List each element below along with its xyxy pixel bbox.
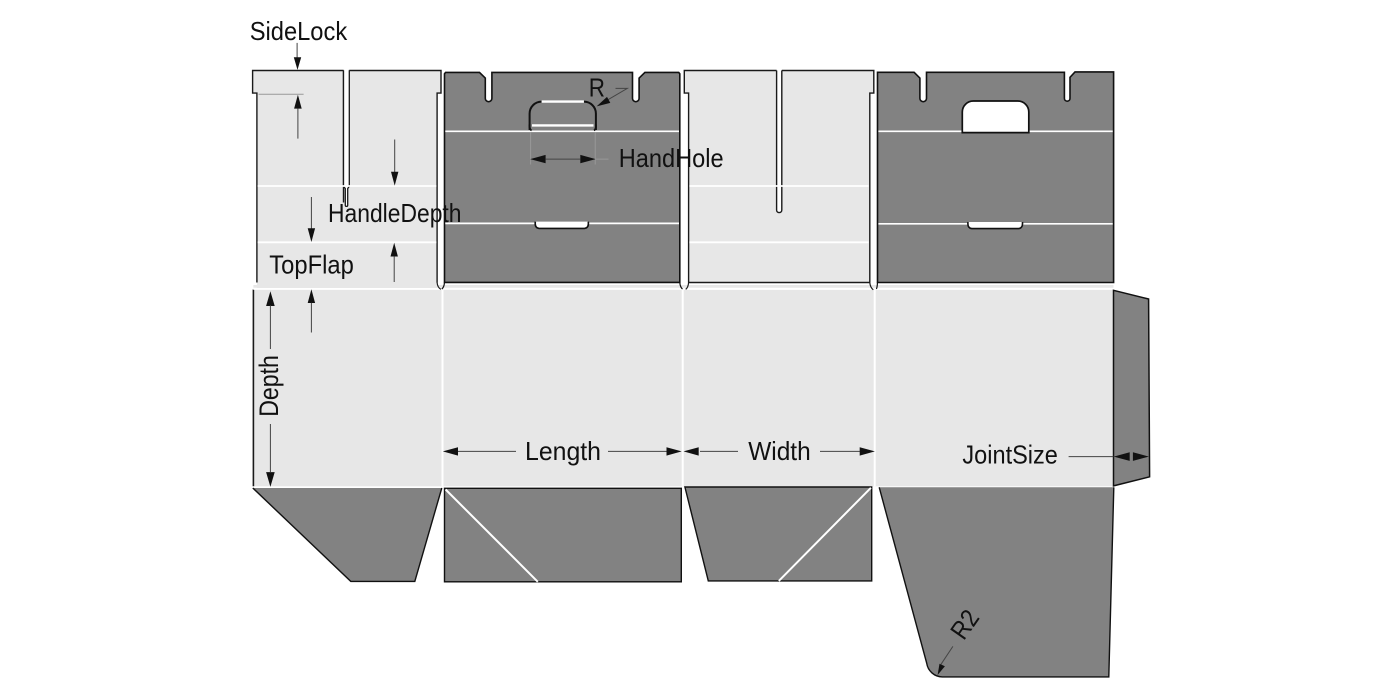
svg-text:TopFlap: TopFlap xyxy=(269,249,354,279)
svg-text:R: R xyxy=(589,73,605,103)
svg-text:Width: Width xyxy=(748,436,811,466)
svg-text:Depth: Depth xyxy=(254,355,284,417)
svg-text:HandHole: HandHole xyxy=(619,143,724,173)
svg-text:Length: Length xyxy=(525,436,601,466)
svg-text:JointSize: JointSize xyxy=(962,440,1058,470)
svg-text:SideLock: SideLock xyxy=(250,16,348,46)
svg-text:HandleDepth: HandleDepth xyxy=(328,198,462,228)
